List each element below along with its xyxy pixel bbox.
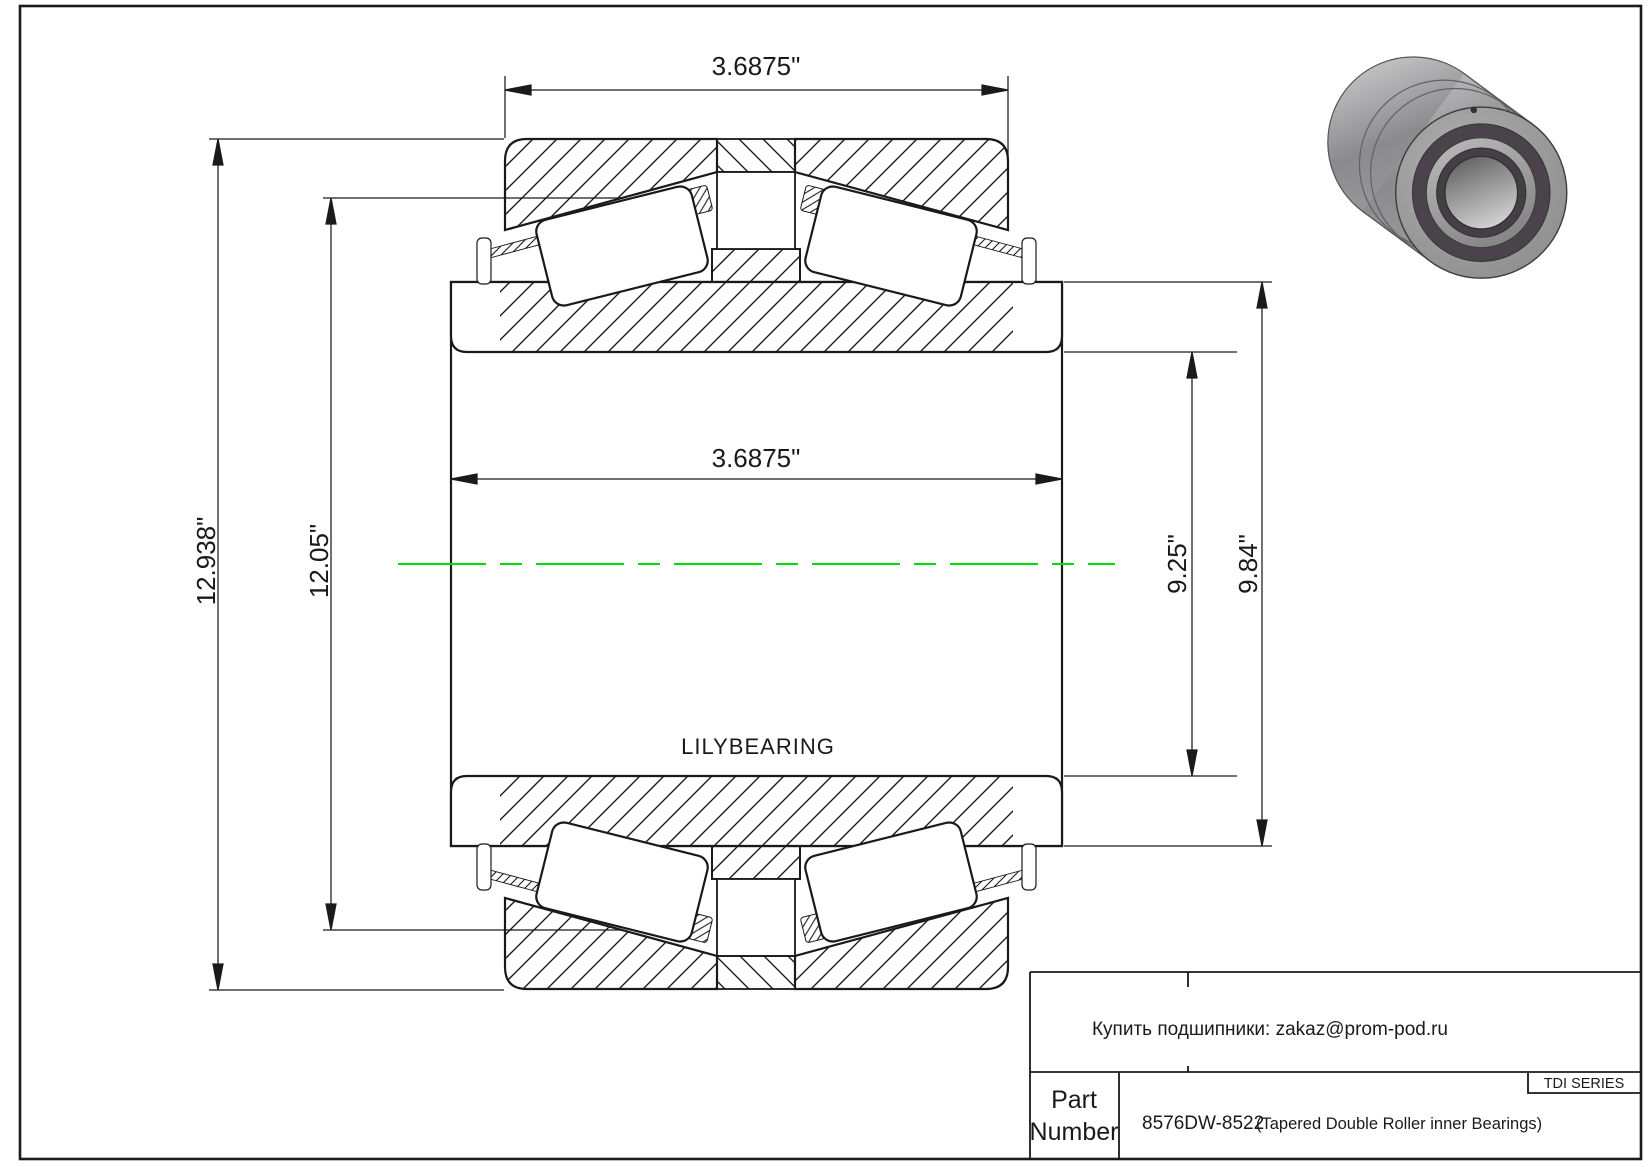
- dim-outside-diameter: 12.938": [191, 517, 221, 606]
- brand-label: LILYBEARING: [681, 734, 835, 759]
- part-label-line1: Part: [1051, 1086, 1097, 1114]
- part-description: (Tapered Double Roller inner Bearings): [1256, 1115, 1542, 1133]
- part-label-line2: Number: [1030, 1118, 1119, 1146]
- engineering-drawing-page: LILYBEARING 3.: [0, 0, 1649, 1167]
- cone-center-rib-top: [712, 249, 800, 282]
- drawing-canvas: LILYBEARING 3.: [0, 0, 1649, 1167]
- cup-spacer-bottom: [717, 879, 795, 956]
- cup-spacer-bottom-hatch: [717, 956, 795, 989]
- cup-spacer-top: [717, 172, 795, 249]
- part-number: 8576DW-8522: [1142, 1113, 1264, 1134]
- dim-cone-rib-diameter: 9.84": [1233, 534, 1263, 594]
- series-badge: TDI SERIES: [1544, 1076, 1625, 1092]
- dim-cup-diameter: 12.05": [304, 524, 334, 598]
- contact-text: Купить подшипники: zakaz@prom-pod.ru: [1092, 1019, 1448, 1040]
- dim-cone-width: 3.6875": [712, 443, 801, 473]
- dim-race-diameter: 9.25": [1162, 534, 1192, 594]
- bearing-bore: [1445, 156, 1518, 229]
- dim-top-width: 3.6875": [712, 51, 801, 81]
- bearing-cross-section: LILYBEARING: [398, 139, 1115, 989]
- cup-spacer-top-hatch: [717, 139, 795, 172]
- bearing-photo-3d-render: [1328, 57, 1567, 278]
- cone-center-rib-bottom: [712, 846, 800, 879]
- title-block: Купить подшипники: zakaz@prom-pod.ru Par…: [1030, 972, 1641, 1158]
